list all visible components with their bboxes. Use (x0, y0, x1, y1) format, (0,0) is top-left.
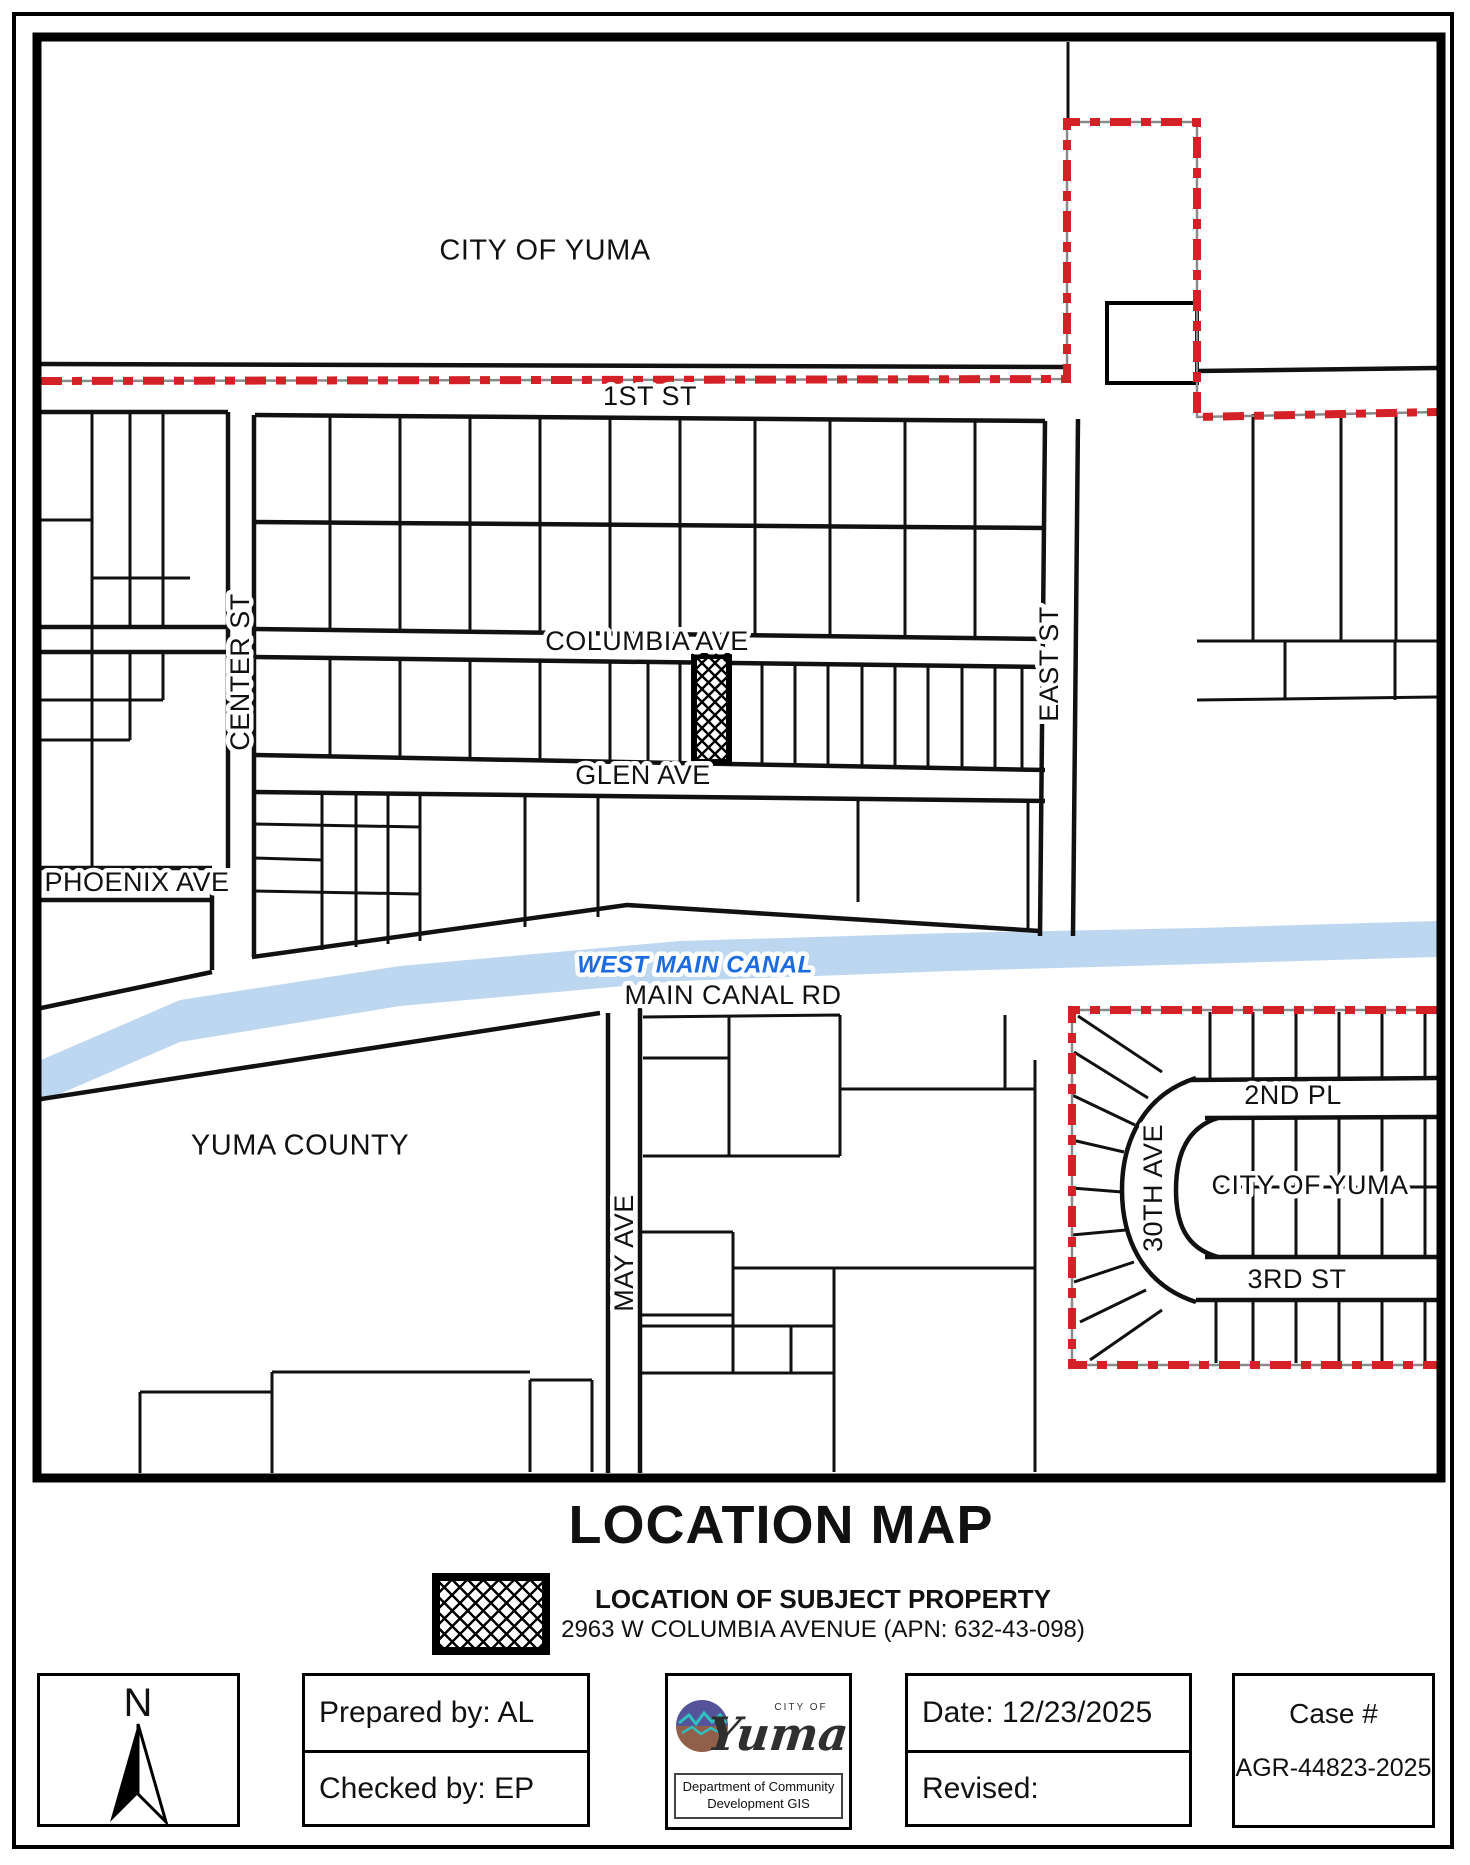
street-edge-lines (41, 364, 1437, 1473)
label-phoenix-ave: PHOENIX AVE (44, 867, 229, 897)
label-may-ave: MAY AVE (609, 1194, 639, 1312)
label-1st-st: 1ST ST (603, 381, 697, 411)
subject-property-parcel (694, 656, 729, 762)
north-label: N (124, 1681, 153, 1725)
checked-by: Checked by: EP (305, 1750, 587, 1824)
label-yuma-county: YUMA COUNTY (191, 1130, 409, 1162)
logo-department-text: Department of Community Development GIS (674, 1773, 843, 1819)
page-title: LOCATION MAP (96, 1494, 1466, 1556)
case-label: Case # (1235, 1698, 1432, 1730)
prepared-checked-box: Prepared by: AL Checked by: EP (302, 1673, 590, 1827)
label-3rd-st: 3RD ST (1247, 1264, 1346, 1294)
building-footprint (1107, 303, 1197, 383)
case-number: AGR-44823-2025 (1235, 1754, 1432, 1783)
label-city-of-yuma: CITY OF YUMA (439, 235, 650, 267)
label-west-main-canal: WEST MAIN CANAL (577, 951, 812, 978)
revised-value: Revised: (908, 1750, 1189, 1824)
label-city-of-yuma-subdivision: CITY OF YUMA (1211, 1170, 1408, 1200)
case-number-box: Case # AGR-44823-2025 (1232, 1673, 1435, 1828)
map-labels: CITY OF YUMA 1ST ST CENTER ST COLUMBIA A… (44, 235, 1408, 1312)
label-2nd-pl: 2ND PL (1244, 1080, 1342, 1110)
date-value: Date: 12/23/2025 (908, 1676, 1189, 1750)
label-east-st: EAST ST (1034, 606, 1064, 722)
label-center-st: CENTER ST (225, 593, 255, 751)
north-arrow-box: N (37, 1673, 240, 1827)
legend-address: 2963 W COLUMBIA AVENUE (APN: 632-43-098) (423, 1616, 1223, 1644)
legend-heading: LOCATION OF SUBJECT PROPERTY (423, 1584, 1223, 1615)
city-of-yuma-logo-box: CITY OF Yuma Department of Community Dev… (665, 1673, 852, 1830)
north-arrow-icon: N (40, 1676, 237, 1824)
date-revised-box: Date: 12/23/2025 Revised: (905, 1673, 1192, 1827)
label-columbia-ave: COLUMBIA AVE (545, 626, 749, 656)
label-glen-ave: GLEN AVE (575, 760, 711, 790)
logo-yuma-script: Yuma (705, 1707, 849, 1761)
map-frame (37, 37, 1441, 1478)
label-30th-ave: 30TH AVE (1138, 1124, 1168, 1252)
location-map-page: CITY OF YUMA 1ST ST CENTER ST COLUMBIA A… (0, 0, 1470, 1865)
prepared-by: Prepared by: AL (305, 1676, 587, 1750)
label-main-canal-rd: MAIN CANAL RD (624, 980, 841, 1010)
city-of-yuma-logo: CITY OF Yuma (668, 1676, 849, 1776)
